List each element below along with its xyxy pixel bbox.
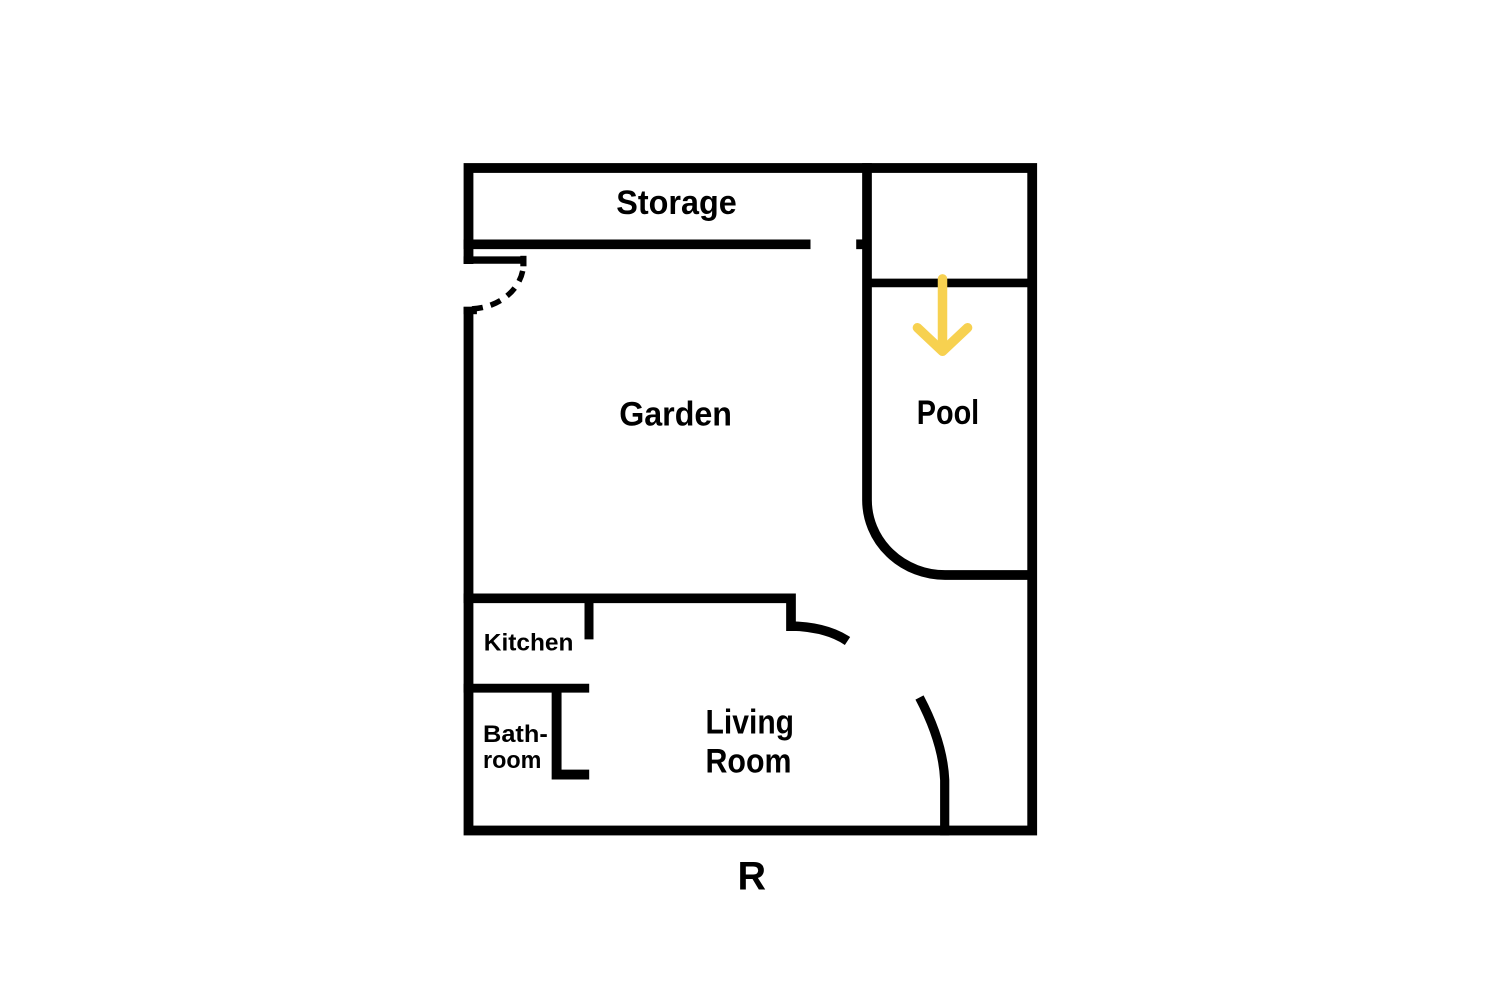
svg-text:Pool: Pool [917,394,979,432]
svg-text:Bath-: Bath- [483,721,548,748]
svg-text:Room: Room [706,743,792,781]
svg-text:R: R [738,855,767,899]
svg-text:Storage: Storage [616,184,737,222]
svg-text:Kitchen: Kitchen [484,630,574,657]
svg-text:Garden: Garden [619,396,732,434]
svg-text:room: room [483,747,541,774]
svg-text:Living: Living [706,704,795,742]
